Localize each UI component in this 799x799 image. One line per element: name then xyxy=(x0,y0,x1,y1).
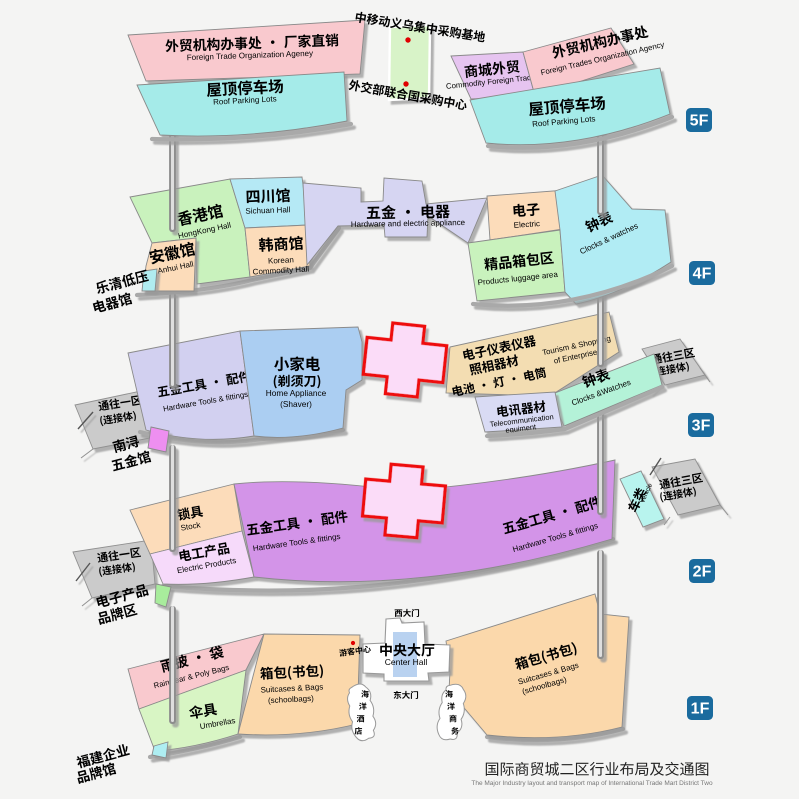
svg-text:5F: 5F xyxy=(690,113,709,130)
svg-text:(Shaver): (Shaver) xyxy=(280,399,312,409)
svg-text:1F: 1F xyxy=(691,701,710,718)
svg-text:Home Appliance: Home Appliance xyxy=(266,388,327,398)
svg-text:Center Hall: Center Hall xyxy=(385,657,428,667)
svg-text:4F: 4F xyxy=(693,266,712,283)
svg-text:2F: 2F xyxy=(693,564,712,581)
svg-text:Electric: Electric xyxy=(513,219,540,230)
svg-text:Korean: Korean xyxy=(268,255,294,265)
svg-text:Sichuan Hall: Sichuan Hall xyxy=(245,205,290,216)
svg-text:3F: 3F xyxy=(692,418,711,435)
svg-text:The Major Industry layout and: The Major Industry layout and transport … xyxy=(471,780,713,787)
